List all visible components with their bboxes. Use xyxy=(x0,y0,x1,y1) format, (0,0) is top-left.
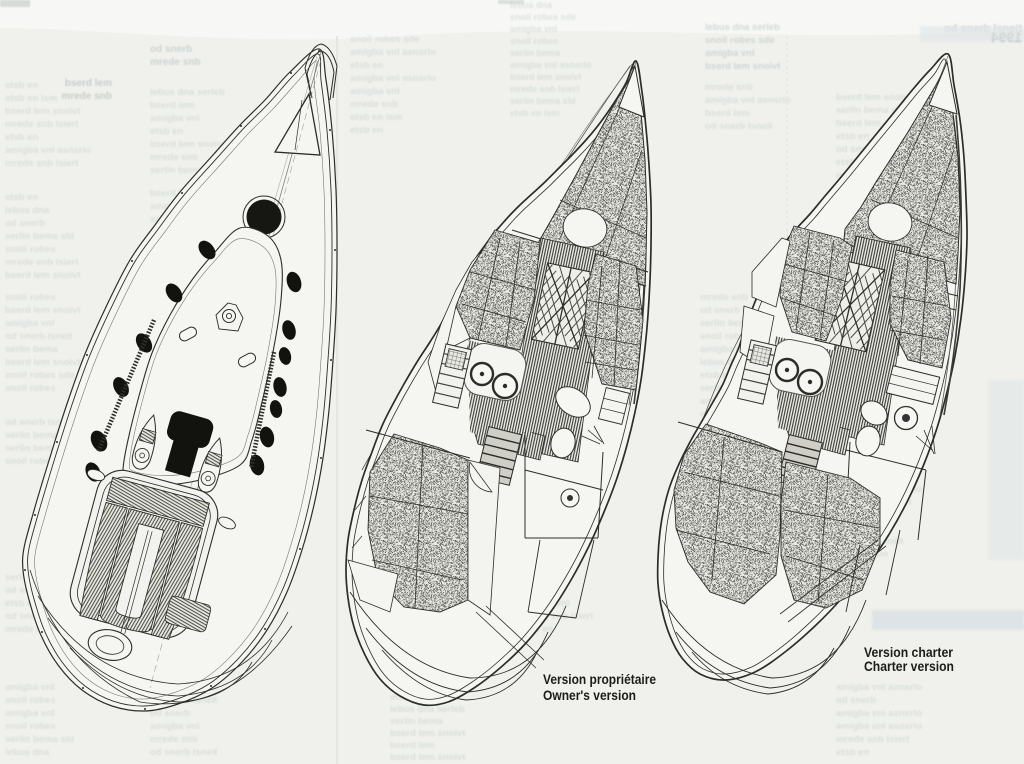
svg-text:bserd lem snoivt: bserd lem snoivt xyxy=(150,139,226,150)
svg-text:amigba vnl: amigba vnl xyxy=(5,682,55,693)
svg-text:snoil robes: snoil robes xyxy=(5,695,56,706)
svg-text:od snerb: od snerb xyxy=(836,695,876,706)
svg-text:etsb en: etsb en xyxy=(350,125,383,136)
svg-text:snoil robes: snoil robes xyxy=(5,244,56,255)
svg-text:bserd lem snoivt: bserd lem snoivt xyxy=(705,61,781,72)
svg-text:Version charter: Version charter xyxy=(864,645,954,660)
svg-text:mrede snb: mrede snb xyxy=(350,99,398,110)
svg-text:snoil robes: snoil robes xyxy=(5,292,56,303)
svg-text:lebus dna: lebus dna xyxy=(510,0,553,10)
svg-text:etsb en: etsb en xyxy=(5,80,38,91)
svg-text:serlin bema sld: serlin bema sld xyxy=(5,231,74,242)
svg-text:serlin bema: serlin bema xyxy=(5,443,59,454)
svg-text:Version propriétaire: Version propriétaire xyxy=(543,672,656,687)
svg-text:snoil robes: snoil robes xyxy=(5,721,56,732)
svg-text:mrede snb lsiert: mrede snb lsiert xyxy=(510,84,580,94)
svg-text:etsb en: etsb en xyxy=(836,131,869,142)
svg-text:amigba vnl asnsrlo: amigba vnl asnsrlo xyxy=(510,60,592,70)
svg-text:amigba vnl: amigba vnl xyxy=(350,86,400,97)
svg-text:amigba vnl asnsrlo: amigba vnl asnsrlo xyxy=(350,73,436,84)
svg-text:snoil robes sde: snoil robes sde xyxy=(705,35,775,46)
svg-text:bserd lem: bserd lem xyxy=(65,78,112,89)
svg-text:serlin bema: serlin bema xyxy=(390,716,444,727)
svg-text:mrede snb: mrede snb xyxy=(61,91,112,102)
svg-text:bserd lem snoivt: bserd lem snoivt xyxy=(390,728,466,739)
svg-text:etsb en: etsb en xyxy=(150,126,183,137)
svg-text:snoil robes sde: snoil robes sde xyxy=(350,34,420,45)
svg-text:Owner's version: Owner's version xyxy=(543,688,636,703)
svg-text:amigba vnl asnsrlo: amigba vnl asnsrlo xyxy=(350,47,436,58)
svg-text:mrede snb lsiert: mrede snb lsiert xyxy=(836,734,910,745)
svg-text:etsb en lsm: etsb en lsm xyxy=(5,93,57,104)
svg-text:bserd lem: bserd lem xyxy=(390,740,435,751)
svg-text:snoil robes: snoil robes xyxy=(510,36,558,46)
svg-text:amigba vnl asnsrlo: amigba vnl asnsrlo xyxy=(705,95,791,106)
svg-text:mrede snb: mrede snb xyxy=(150,734,198,745)
svg-text:bserd lem snoivt: bserd lem snoivt xyxy=(836,92,912,103)
svg-text:amigba vnl asnsrlo: amigba vnl asnsrlo xyxy=(836,721,922,732)
svg-text:amigba vnl asnsrlo: amigba vnl asnsrlo xyxy=(5,145,91,156)
svg-text:mrede snb: mrede snb xyxy=(700,292,748,303)
svg-text:mrede snb lsiert: mrede snb lsiert xyxy=(5,257,79,268)
svg-text:lebus dna serleb: lebus dna serleb xyxy=(705,22,780,33)
svg-text:amigba vnl asnsrlo: amigba vnl asnsrlo xyxy=(836,682,922,693)
svg-text:lebus dna: lebus dna xyxy=(5,747,50,758)
svg-text:etsb en: etsb en xyxy=(5,192,38,203)
svg-text:amigba vnl asnsrlo: amigba vnl asnsrlo xyxy=(836,708,922,719)
svg-text:amigba vnl: amigba vnl xyxy=(150,721,200,732)
svg-text:bserd lem snoivt: bserd lem snoivt xyxy=(5,305,81,316)
svg-text:amigba vnl: amigba vnl xyxy=(510,24,557,34)
svg-text:serlin bema sld: serlin bema sld xyxy=(5,734,74,745)
svg-text:serlin bema sld: serlin bema sld xyxy=(510,96,576,106)
svg-text:serlin bema: serlin bema xyxy=(510,48,561,58)
svg-text:mrede snb: mrede snb xyxy=(150,57,201,68)
svg-text:serlin bema: serlin bema xyxy=(5,430,59,441)
svg-text:bserd lem snoivt: bserd lem snoivt xyxy=(510,72,582,82)
svg-text:mrede snb: mrede snb xyxy=(705,82,753,93)
svg-text:lebus dna serleb: lebus dna serleb xyxy=(150,87,225,98)
svg-text:bserd lem snoivt: bserd lem snoivt xyxy=(5,106,81,117)
svg-text:mrede snb: mrede snb xyxy=(150,152,198,163)
svg-text:etsb en lsm: etsb en lsm xyxy=(510,108,560,118)
svg-text:mrede snb lsiert: mrede snb lsiert xyxy=(5,158,79,169)
svg-text:amigba vnl: amigba vnl xyxy=(150,113,200,124)
svg-text:mrede snb lsiert: mrede snb lsiert xyxy=(5,119,79,130)
svg-text:etsb en: etsb en xyxy=(836,747,869,758)
svg-text:Charter version: Charter version xyxy=(864,659,954,674)
svg-text:amigba vnl: amigba vnl xyxy=(5,318,55,329)
svg-text:amigba vnl: amigba vnl xyxy=(5,708,55,719)
svg-text:bserd lem: bserd lem xyxy=(150,100,195,111)
svg-text:bserd lem snoivt: bserd lem snoivt xyxy=(390,752,466,763)
svg-text:etsb en lsm: etsb en lsm xyxy=(350,112,402,123)
svg-text:snoil robes sde: snoil robes sde xyxy=(510,12,576,22)
svg-text:snoil robes sde: snoil robes sde xyxy=(5,370,75,381)
svg-text:etsb en: etsb en xyxy=(350,60,383,71)
svg-text:bserd lem snoivt: bserd lem snoivt xyxy=(5,357,81,368)
svg-text:od snerb: od snerb xyxy=(150,44,192,55)
svg-text:snoil robes: snoil robes xyxy=(5,383,56,394)
svg-text:bserd lem: bserd lem xyxy=(705,108,750,119)
svg-text:amigba vnl: amigba vnl xyxy=(705,48,755,59)
svg-text:od snerb lsneit: od snerb lsneit xyxy=(705,121,773,132)
svg-text:serlin bema: serlin bema xyxy=(5,344,59,355)
svg-text:bserd lem snoivt: bserd lem snoivt xyxy=(5,270,81,281)
svg-text:od snerb lsneit: od snerb lsneit xyxy=(150,747,218,758)
svg-text:od snerb: od snerb xyxy=(5,218,45,229)
svg-text:lebus dna: lebus dna xyxy=(5,205,50,216)
svg-text:od snerb lsneit: od snerb lsneit xyxy=(5,331,73,342)
svg-text:etsb en: etsb en xyxy=(5,132,38,143)
svg-text:bserd lem: bserd lem xyxy=(836,118,881,129)
